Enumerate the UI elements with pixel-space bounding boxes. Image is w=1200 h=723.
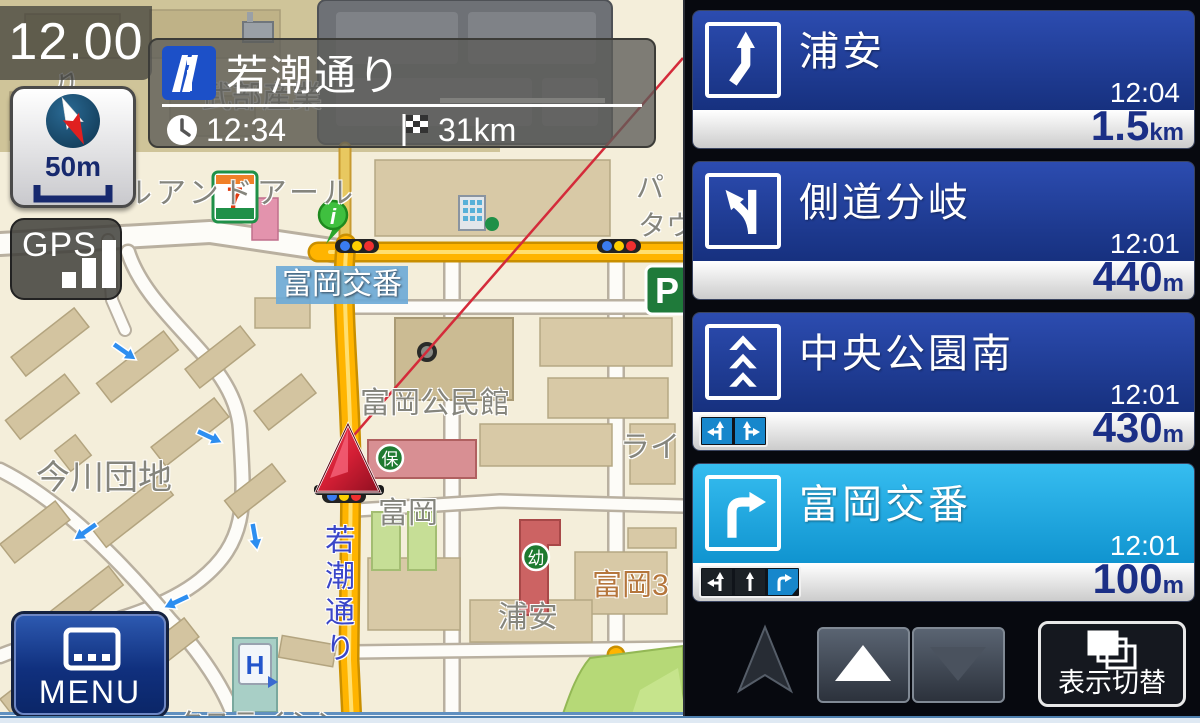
scroll-down-button[interactable] [912, 627, 1005, 703]
gps-status: GPS [10, 218, 122, 300]
distance-unit: m [1163, 572, 1184, 599]
parking-icon: P [646, 266, 683, 314]
map-label: 浦安 [498, 592, 558, 636]
turn-item-strip: 440m [693, 261, 1194, 299]
map-label: パ [636, 166, 664, 206]
gps-signal-bars [12, 220, 120, 298]
menu-button[interactable]: MENU [14, 614, 166, 715]
turn-icon-slight-right [705, 22, 781, 98]
map-label: 富岡3 [592, 560, 669, 604]
turn-item-strip: 430m [693, 412, 1194, 450]
map-label: 今川団地 [36, 450, 172, 499]
distance-unit: m [1163, 421, 1184, 448]
koban-map-label: 富岡交番 [276, 266, 408, 304]
position-cursor-icon[interactable] [735, 623, 795, 699]
turn-item-header: 浦安 12:04 [693, 11, 1194, 112]
menu-icon [62, 626, 122, 672]
turn-item-distance: 440 [1093, 253, 1163, 300]
lane-guidance [699, 566, 801, 598]
turn-item-header: 側道分岐 12:01 [693, 162, 1194, 263]
map-label: ルアンドアール [122, 168, 357, 212]
lane-straight-right-active [735, 418, 765, 444]
compass-scale-button[interactable]: 50m [10, 86, 136, 208]
route-info-banner: 若潮通り 12:34 31km [148, 38, 656, 148]
eta-clock-icon [166, 114, 200, 148]
turn-item-title: 富岡交番 [799, 472, 971, 530]
svg-text:保: 保 [382, 450, 399, 469]
turn-list-item[interactable]: 側道分岐 12:01 440m [692, 161, 1195, 300]
nursery-badge: 保 [377, 445, 403, 471]
turn-item-strip: 100m [693, 563, 1194, 601]
lane-straight-left [702, 569, 732, 595]
navigation-screen: 7 i [0, 0, 1200, 723]
turn-item-distance: 430 [1093, 404, 1163, 451]
svg-text:P: P [655, 270, 679, 311]
menu-label: MENU [16, 674, 164, 711]
turn-list-panel: 浦安 12:04 1.5km 側道分岐 12:01 [683, 0, 1200, 723]
turn-item-distance: 100 [1093, 555, 1163, 602]
banner-divider [162, 104, 642, 107]
turn-item-title: 浦安 [799, 19, 885, 77]
map-label: 富岡公民館 [360, 378, 510, 422]
turn-item-header: 富岡交番 12:01 [693, 464, 1194, 565]
highway-icon [162, 46, 218, 102]
display-toggle-label: 表示切替 [1041, 661, 1183, 700]
turn-list-item[interactable]: 浦安 12:04 1.5km [692, 10, 1195, 149]
map-label: タウ [638, 204, 683, 244]
display-toggle-button[interactable]: 表示切替 [1038, 621, 1186, 707]
lane-right-active [768, 569, 798, 595]
distance-unit: m [1163, 270, 1184, 297]
remaining-distance: 31km [438, 112, 516, 149]
lane-straight-left-active [702, 418, 732, 444]
turn-item-title: 側道分岐 [799, 170, 971, 228]
turn-icon-right [705, 475, 781, 551]
kindergarten-badge: 幼 [523, 544, 549, 570]
turn-icon-straight [705, 324, 781, 400]
map-label: 富岡 [378, 488, 438, 532]
current-road-name: 若潮通り [226, 42, 402, 103]
map-label: ライ [620, 422, 680, 466]
goal-flag-icon [398, 112, 434, 148]
turn-list-item-selected[interactable]: 富岡交番 12:01 100m [692, 463, 1195, 602]
turn-item-header: 中央公園南 12:01 [693, 313, 1194, 414]
svg-text:H: H [246, 650, 265, 680]
turn-item-strip: 1.5km [693, 110, 1194, 148]
turn-item-distance: 1.5 [1091, 102, 1149, 149]
list-controls: 表示切替 [685, 613, 1200, 713]
turn-icon-fork-left [705, 173, 781, 249]
screen-bottom-edge [0, 716, 1200, 723]
svg-text:幼: 幼 [528, 549, 545, 568]
turn-list-item[interactable]: 中央公園南 12:01 430m [692, 312, 1195, 451]
distance-unit: km [1149, 119, 1184, 146]
scroll-up-button[interactable] [817, 627, 910, 703]
turn-item-title: 中央公園南 [799, 321, 1014, 379]
map-scale-label: 50m [13, 151, 133, 183]
lane-straight [735, 569, 765, 595]
lane-guidance [699, 415, 768, 447]
map-view[interactable]: 7 i [0, 0, 683, 723]
clock-display: 12.00 [0, 6, 152, 80]
road-name-vertical: 若潮通り [314, 524, 358, 668]
eta-time: 12:34 [206, 112, 286, 149]
